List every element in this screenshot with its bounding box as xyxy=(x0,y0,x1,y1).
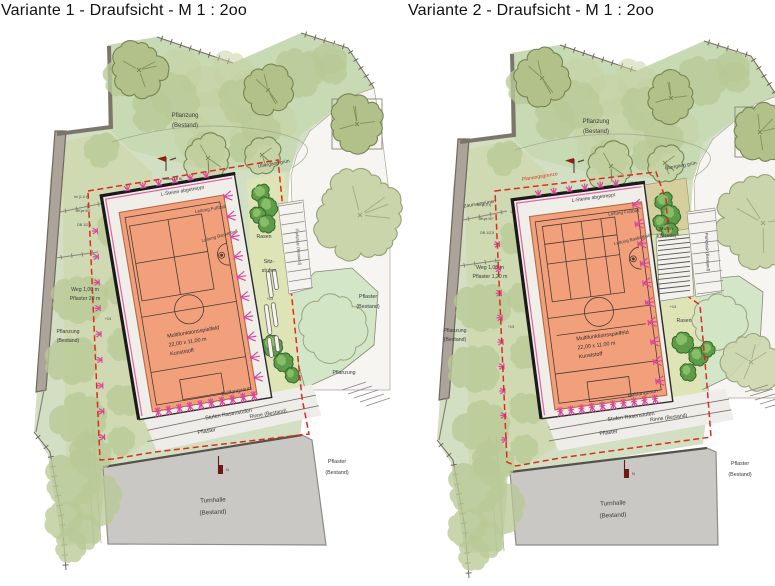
svg-text:Rasen: Rasen xyxy=(257,234,272,240)
svg-text:N: N xyxy=(226,467,229,472)
svg-text:Turnhalle: Turnhalle xyxy=(600,499,626,507)
svg-text:stufen: stufen xyxy=(262,268,277,274)
svg-text:+0,5: +0,5 xyxy=(105,317,112,321)
svg-text:(Bestand): (Bestand) xyxy=(356,304,380,310)
svg-text:(Bestand): (Bestand) xyxy=(325,470,349,476)
svg-text:Variante 2 - Draufsicht - M 1: Variante 2 - Draufsicht - M 1 : 2oo xyxy=(408,2,654,19)
svg-text:(Bestand): (Bestand) xyxy=(728,472,752,478)
svg-text:Stufen: Stufen xyxy=(659,226,673,232)
svg-text:+0,5: +0,5 xyxy=(670,305,677,309)
svg-text:Ini (1,0 t): Ini (1,0 t) xyxy=(74,195,88,199)
svg-text:Turnhalle: Turnhalle xyxy=(200,496,226,504)
svg-text:(Bestand): (Bestand) xyxy=(599,511,626,519)
svg-text:Rasen: Rasen xyxy=(677,318,692,324)
svg-text:Pflanzung: Pflanzung xyxy=(56,329,79,335)
svg-text:Pflaster: Pflaster xyxy=(731,461,749,467)
svg-text:Pflanzung: Pflanzung xyxy=(332,370,355,376)
svg-text:+0,5: +0,5 xyxy=(508,325,515,329)
svg-text:Pflaster: Pflaster xyxy=(328,459,346,465)
svg-text:Sitz-: Sitz- xyxy=(264,259,275,265)
svg-text:Hecke (1,0 B): Hecke (1,0 B) xyxy=(162,177,183,181)
svg-text:(Bestand): (Bestand) xyxy=(57,338,80,344)
svg-text:Weg 1,00 m: Weg 1,00 m xyxy=(476,265,504,271)
svg-text:Pflaster 1,20 m: Pflaster 1,20 m xyxy=(473,274,508,280)
svg-text:Weg 1,00 m: Weg 1,00 m xyxy=(71,287,99,293)
svg-text:Pflanzung: Pflanzung xyxy=(172,113,199,119)
svg-text:N: N xyxy=(632,471,635,476)
svg-text:Pflaster: Pflaster xyxy=(359,294,377,300)
svg-text:Pflaster 20 m: Pflaster 20 m xyxy=(70,296,101,302)
svg-text:OB 1/2,5: OB 1/2,5 xyxy=(480,231,494,235)
svg-text:(Bestand): (Bestand) xyxy=(444,337,467,343)
svg-text:(Bestand): (Bestand) xyxy=(199,508,226,516)
svg-text:Pflanzung: Pflanzung xyxy=(443,328,466,334)
svg-text:3/73 (6/26): 3/73 (6/26) xyxy=(656,233,677,238)
svg-text:OKye M?: OKye M? xyxy=(479,217,494,221)
svg-text:(Bestand): (Bestand) xyxy=(583,129,609,135)
svg-text:(Bestand): (Bestand) xyxy=(172,123,198,129)
svg-text:Pflanzung: Pflanzung xyxy=(583,119,610,125)
svg-text:Variante 1 - Draufsicht - M 1: Variante 1 - Draufsicht - M 1 : 2oo xyxy=(1,2,247,19)
